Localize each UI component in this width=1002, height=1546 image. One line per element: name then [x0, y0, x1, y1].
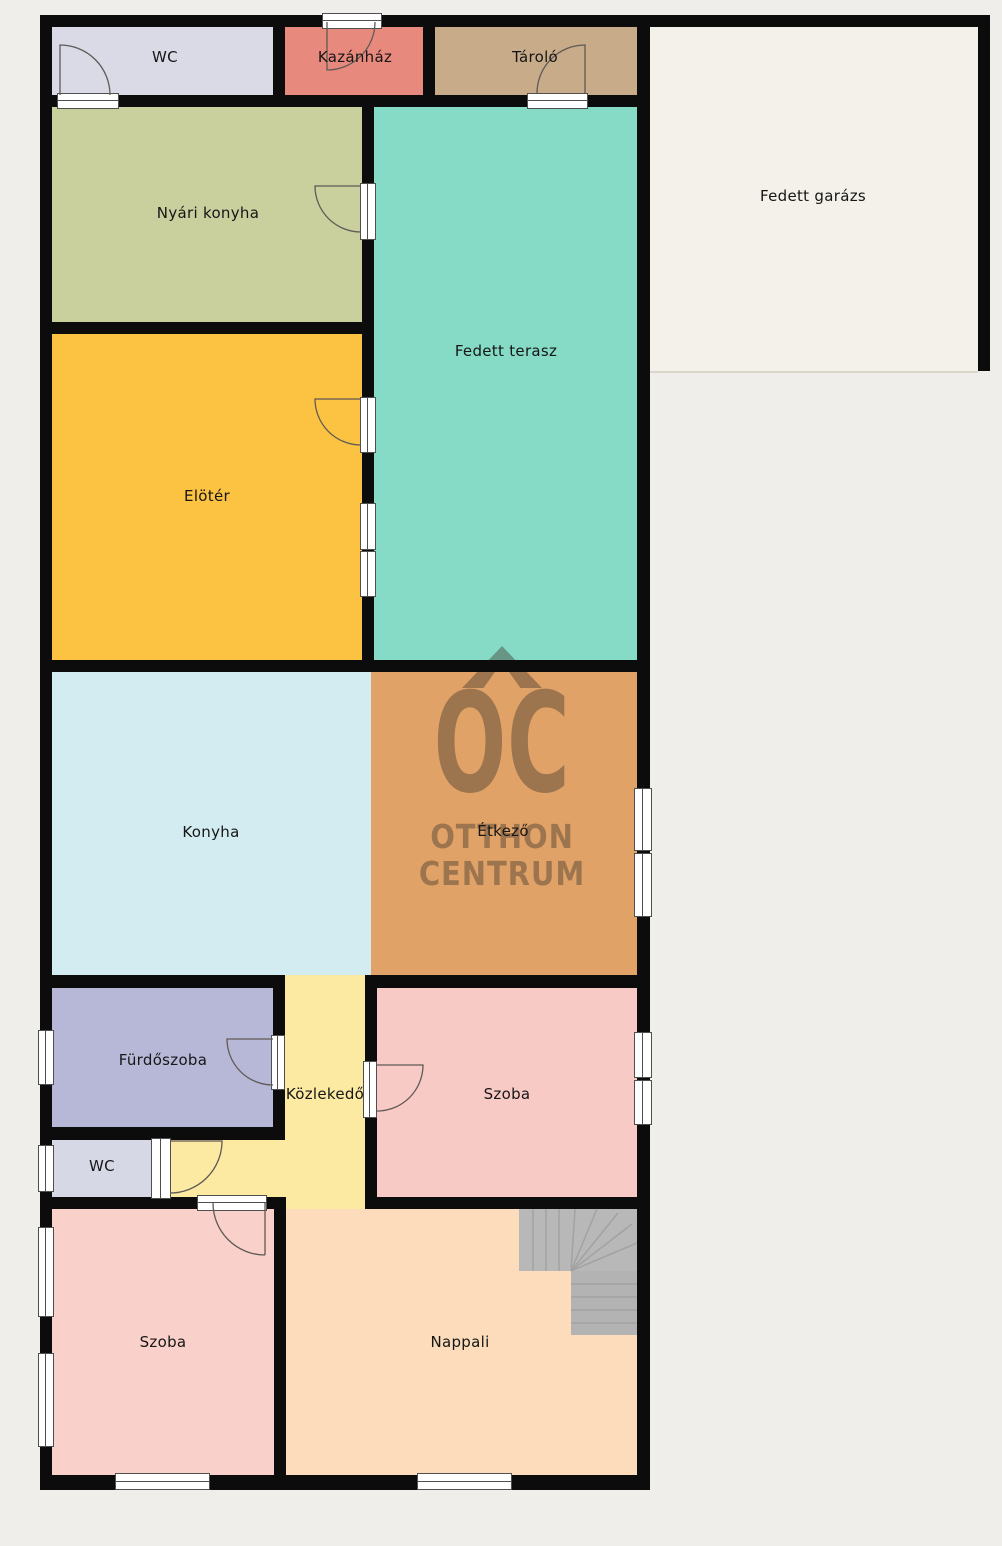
wall-segment — [365, 975, 650, 988]
wall-segment — [637, 15, 650, 1490]
wall-segment — [40, 15, 990, 27]
room-label-szoba-also: Szoba — [140, 1333, 187, 1351]
window-nappali-bottom — [417, 1473, 512, 1490]
wall-segment — [40, 660, 650, 672]
room-label-konyha: Konyha — [182, 823, 239, 841]
room-label-nyari-konyha: Nyári konyha — [157, 204, 259, 222]
window-szoba-kozep-upper — [634, 1032, 652, 1078]
wall-segment — [365, 1197, 637, 1209]
wall-segment — [40, 975, 285, 988]
door-frame-eloter — [360, 397, 376, 453]
watermark-line2: CENTRUM — [396, 857, 607, 890]
room-fill-terasz — [374, 107, 637, 660]
wall-segment — [423, 15, 435, 107]
window-etkezo-upper — [634, 788, 652, 851]
floor-plan: OC OTTHON CENTRUM — [0, 0, 1002, 1546]
window-eloter-terasz-lower — [360, 551, 376, 597]
window-etkezo-lower — [634, 853, 652, 917]
room-label-tarolo: Tároló — [512, 48, 558, 66]
wall-segment — [40, 322, 374, 334]
room-label-terasz: Fedett terasz — [455, 342, 557, 360]
room-label-nappali: Nappali — [430, 1333, 489, 1351]
wall-segment — [978, 15, 990, 371]
window-szoba-also-left-lower — [38, 1353, 54, 1447]
wall-segment — [273, 15, 285, 107]
room-label-wc-top: WC — [152, 48, 178, 66]
room-label-wc-also: WC — [89, 1157, 115, 1175]
door-frame-furdoszoba — [271, 1035, 285, 1090]
door-threshold-szoba-also — [197, 1195, 267, 1211]
room-label-furdoszoba: Fürdőszoba — [119, 1051, 208, 1069]
window-furdoszoba-left — [38, 1030, 54, 1085]
window-szoba-kozep-lower — [634, 1080, 652, 1125]
window-szoba-also-bottom — [115, 1473, 210, 1490]
room-label-etkezo: Étkező — [477, 822, 529, 840]
wall-segment — [274, 1197, 286, 1490]
door-frame-szoba-kozep — [363, 1061, 377, 1118]
room-fill-kozlekedo-side — [170, 1140, 285, 1197]
door-frame-nyari-konyha — [360, 183, 376, 240]
room-label-eloter: Elötér — [184, 487, 230, 505]
window-szoba-also-left-upper — [38, 1227, 54, 1317]
window-wc-also-left — [38, 1145, 54, 1192]
door-threshold-kazanhaz — [322, 13, 382, 29]
door-frame-wc-also — [151, 1138, 171, 1199]
room-label-garage: Fedett garázs — [760, 187, 866, 205]
window-eloter-terasz-upper — [360, 503, 376, 550]
room-label-szoba-kozep: Szoba — [484, 1085, 531, 1103]
watermark-monogram: OC — [428, 686, 577, 802]
door-threshold-wc-top — [57, 93, 119, 109]
door-threshold-tarolo — [527, 93, 588, 109]
room-label-kozlekedo: Közlekedő — [286, 1085, 364, 1103]
room-label-kazanhaz: Kazánház — [318, 48, 392, 66]
